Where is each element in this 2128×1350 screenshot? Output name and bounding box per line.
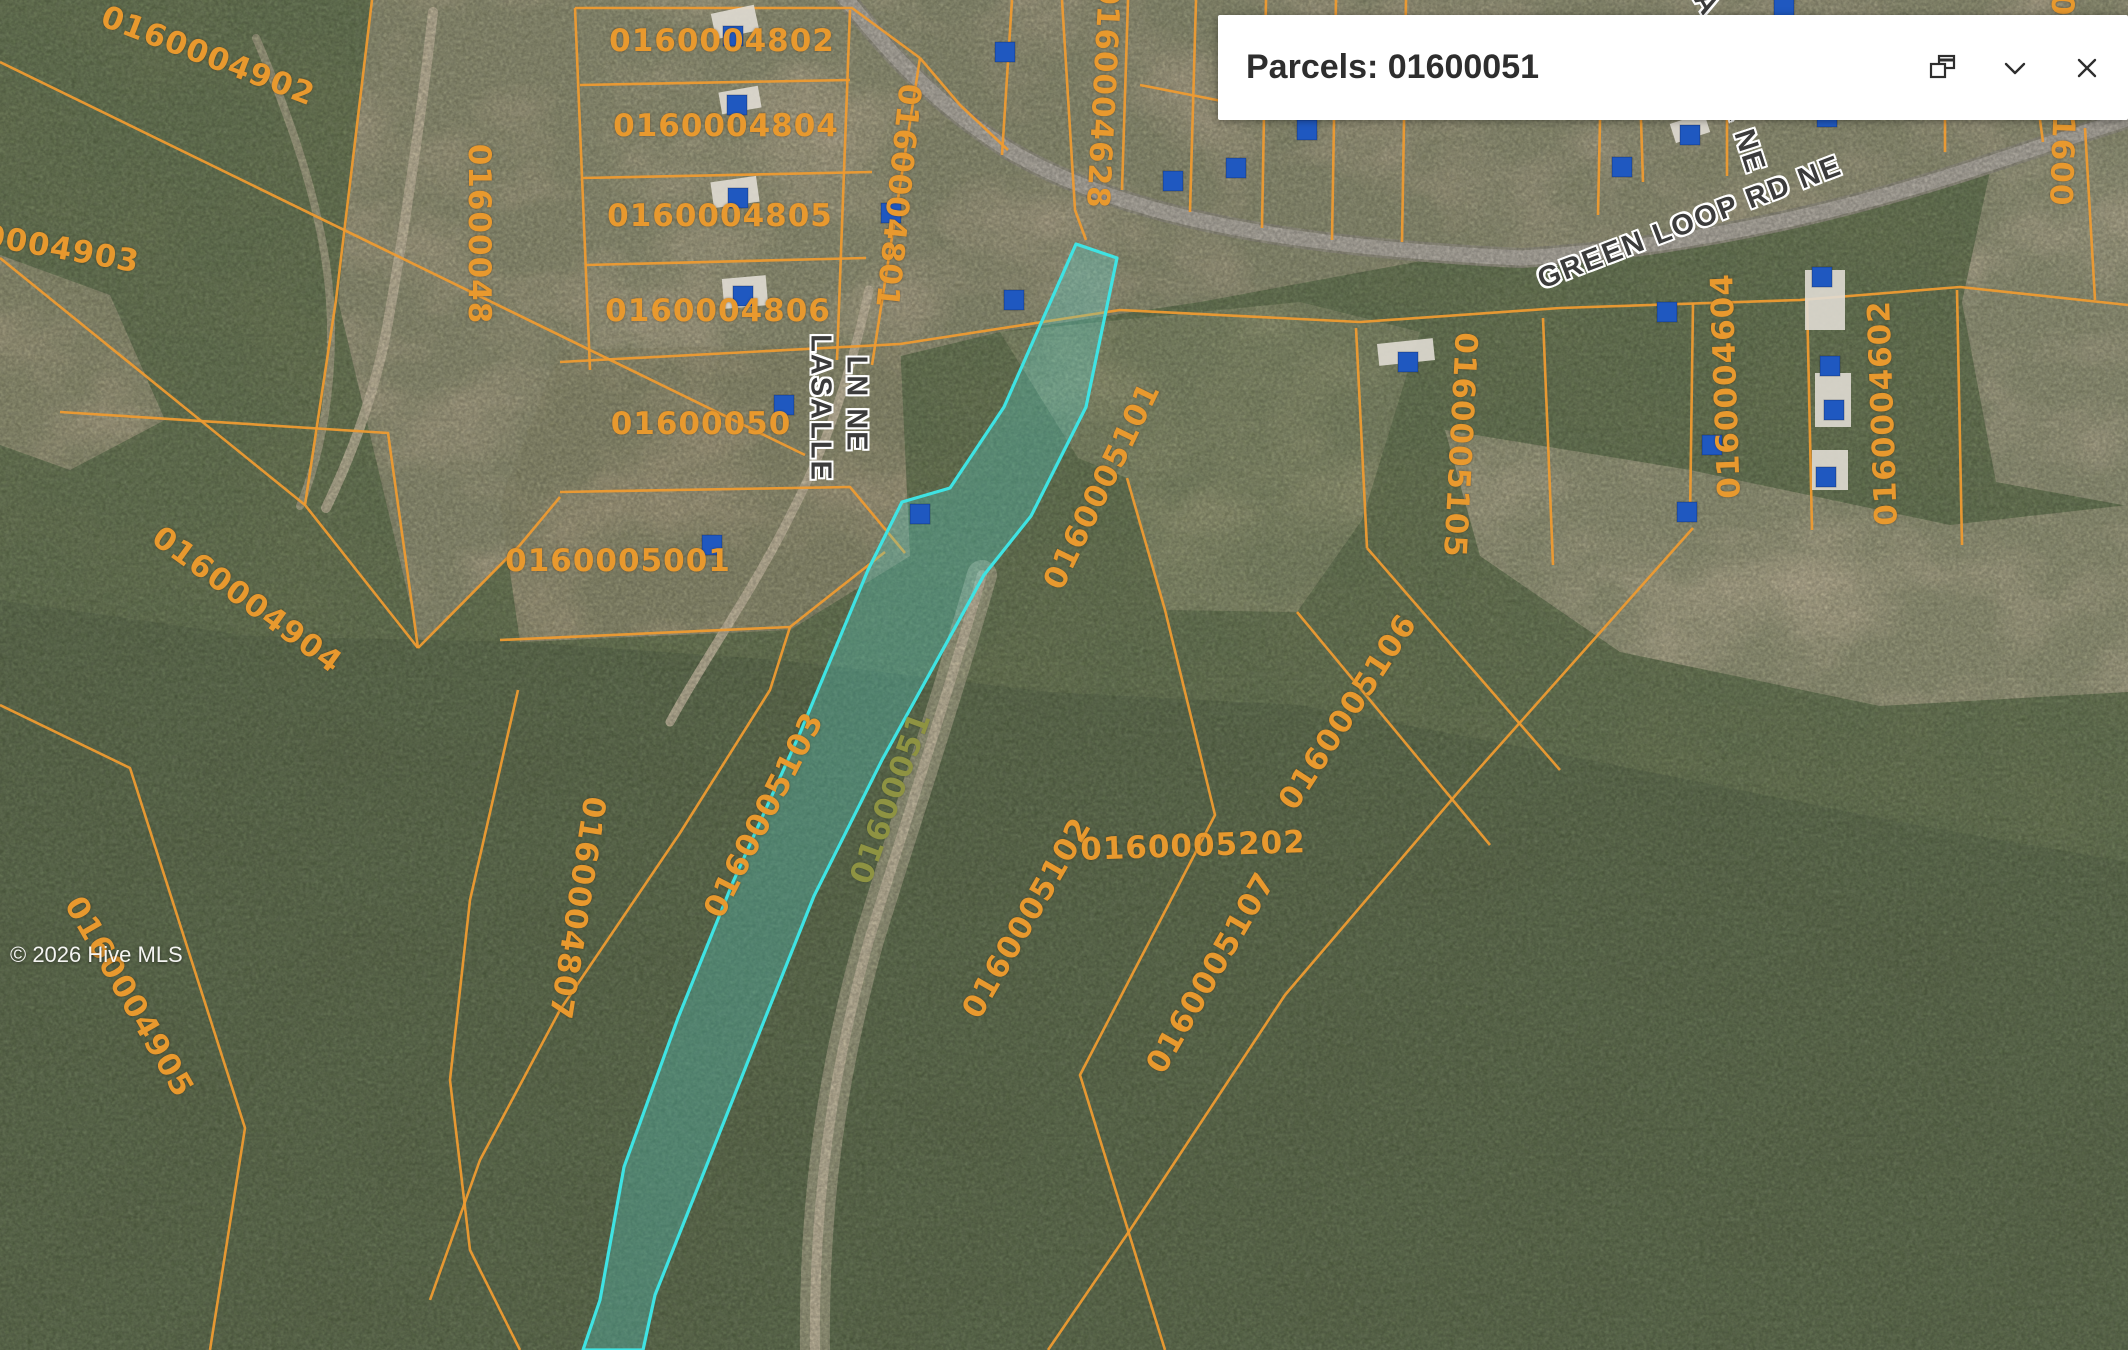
mls-watermark: © 2026 Hive MLS xyxy=(10,942,183,968)
building-marker xyxy=(1163,171,1183,191)
building-marker xyxy=(702,535,722,555)
building-marker xyxy=(1004,290,1024,310)
building-marker xyxy=(1297,120,1317,140)
building-marker xyxy=(1824,400,1844,420)
building-marker xyxy=(1774,0,1794,16)
building-marker xyxy=(995,42,1015,62)
building-marker xyxy=(733,286,753,306)
building-marker xyxy=(1398,352,1418,372)
building-marker xyxy=(727,95,747,115)
building-marker xyxy=(1820,356,1840,376)
popup-title: Parcels: 01600051 xyxy=(1246,48,1924,87)
building-marker xyxy=(1816,467,1836,487)
map-viewport[interactable]: 0160004902016000490301600048016000480201… xyxy=(0,0,2128,1350)
building-marker xyxy=(910,504,930,524)
building-marker xyxy=(1702,435,1722,455)
light-grain-texture xyxy=(0,0,2128,1350)
dock-icon[interactable] xyxy=(1924,49,1962,87)
building-marker xyxy=(774,395,794,415)
building-marker xyxy=(1657,302,1677,322)
building-marker xyxy=(1677,502,1697,522)
building-marker xyxy=(881,203,901,223)
building-marker xyxy=(728,188,748,208)
parcel-popup: Parcels: 01600051 xyxy=(1218,15,2128,120)
building-marker xyxy=(1226,158,1246,178)
map-canvas xyxy=(0,0,2128,1350)
close-icon[interactable] xyxy=(2068,49,2106,87)
building-marker xyxy=(1812,267,1832,287)
building-marker xyxy=(1680,125,1700,145)
building-marker xyxy=(1612,157,1632,177)
chevron-down-icon[interactable] xyxy=(1996,49,2034,87)
building-marker xyxy=(723,26,743,46)
